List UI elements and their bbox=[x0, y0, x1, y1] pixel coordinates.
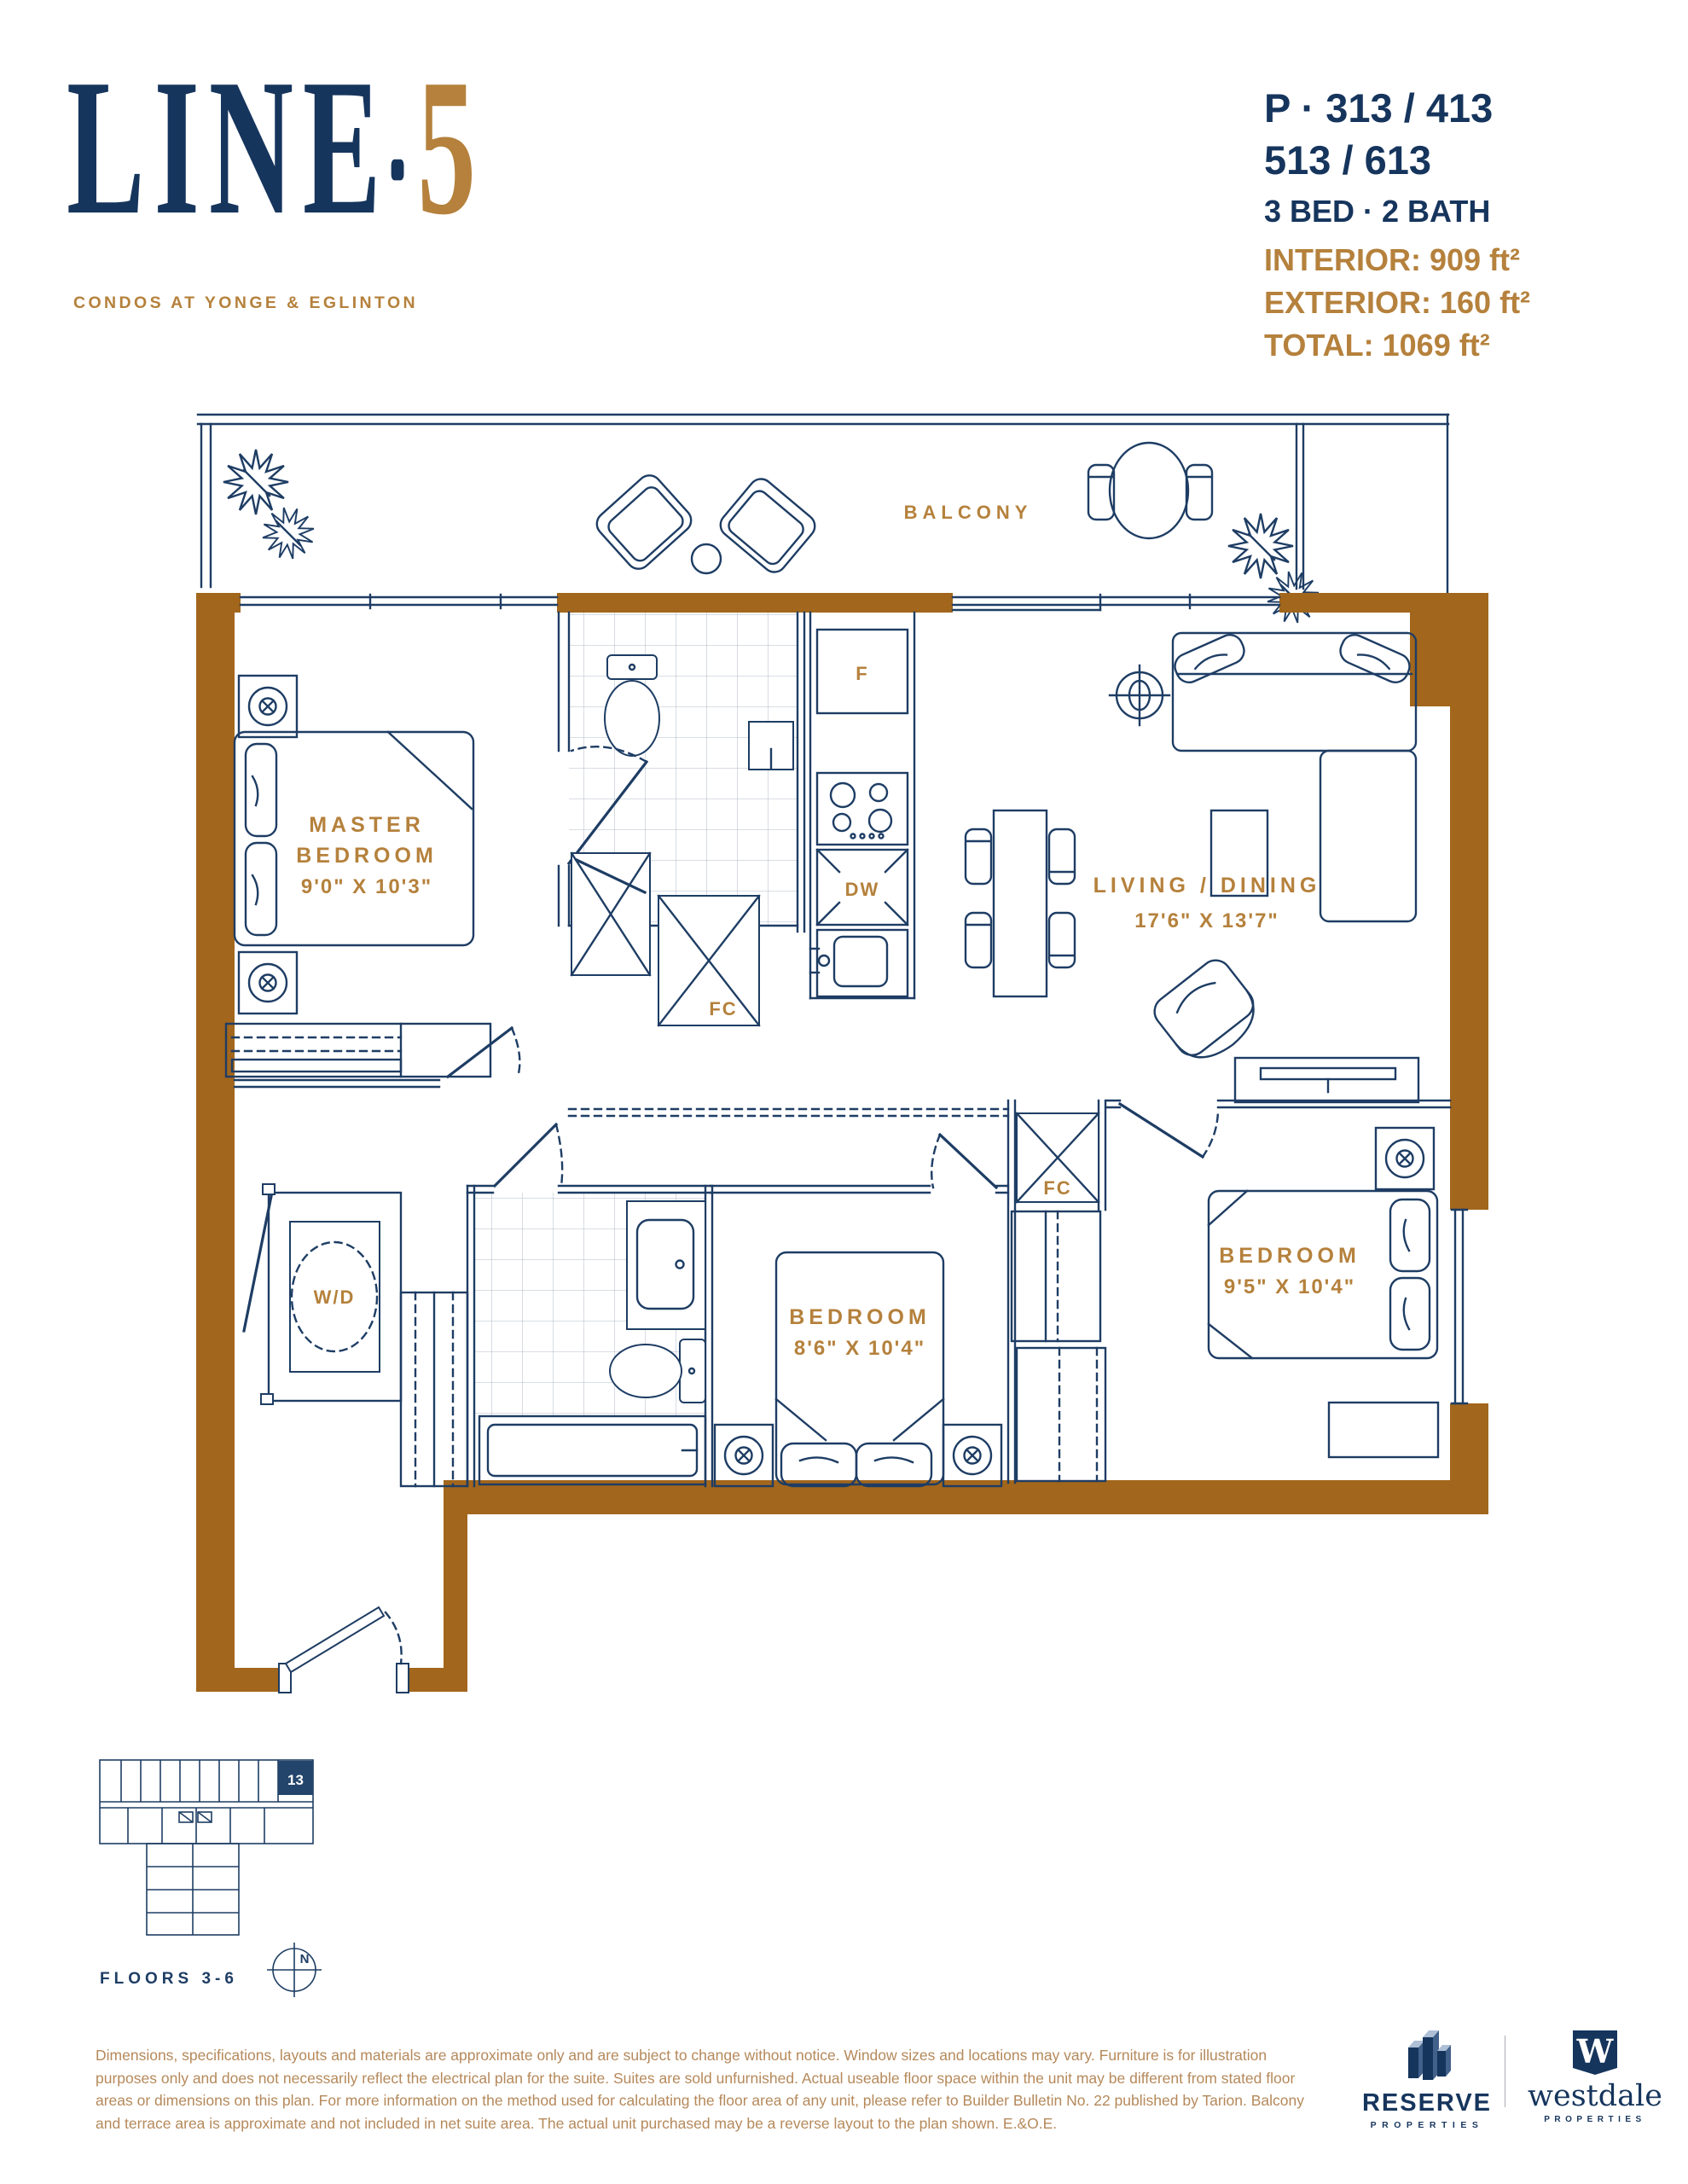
keyplan-floors-label: FLOORS 3-6 bbox=[100, 1970, 238, 1988]
master-bathroom: FC bbox=[559, 613, 804, 1025]
fc-label: FC bbox=[709, 998, 737, 1019]
north-arrow-icon: N bbox=[267, 1943, 322, 1997]
plant-icon bbox=[223, 450, 322, 566]
balcony-chair-icon bbox=[716, 474, 820, 577]
bathroom-sink-icon bbox=[749, 722, 793, 770]
balcony-side-table-icon bbox=[692, 544, 721, 573]
reserve-name: RESERVE bbox=[1354, 2089, 1499, 2117]
dining-chair-icon bbox=[966, 829, 991, 884]
fc-label: FC bbox=[1043, 1177, 1071, 1199]
linen-cabinet-icon bbox=[1012, 1211, 1100, 1341]
bed-icon bbox=[776, 1252, 943, 1484]
balcony-chair-icon bbox=[592, 470, 696, 573]
master-room-dims: 9'0" X 10'3" bbox=[301, 875, 432, 898]
bedroom-3: BEDROOM 9'5" X 10'4" bbox=[1107, 1101, 1450, 1457]
master-bed-icon bbox=[235, 732, 473, 945]
bedroom2-label: BEDROOM bbox=[789, 1305, 931, 1329]
floorplan-page: LINE 5 CONDOS AT YONGE & EGLINTON P · 31… bbox=[0, 0, 1688, 2184]
entry-door-icon bbox=[286, 1607, 384, 1672]
keyplan-unit-number: 13 bbox=[287, 1772, 304, 1788]
bedroom2-dims: 8'6" X 10'4" bbox=[794, 1337, 925, 1360]
westdale-mark-letter: W bbox=[1576, 2032, 1615, 2071]
bathroom-door-icon bbox=[495, 1124, 556, 1186]
keyplan: 13 FLOORS 3-6 N bbox=[68, 1723, 367, 2013]
master-door-icon bbox=[448, 1028, 512, 1077]
toilet-icon bbox=[610, 1339, 705, 1403]
bedroom3-label: BEDROOM bbox=[1219, 1244, 1360, 1268]
line5-logo: LINE 5 bbox=[67, 49, 476, 247]
westdale-name: westdale bbox=[1523, 2079, 1667, 2113]
nightstand-lamp-icon bbox=[715, 1425, 773, 1486]
living-room-dims: 17'6" X 13'7" bbox=[1134, 909, 1279, 932]
living-room-label: LIVING / DINING bbox=[1093, 874, 1321, 897]
armchair-icon bbox=[1148, 954, 1267, 1072]
bedroom-closets: FC bbox=[1008, 1101, 1105, 1483]
tv-console-icon bbox=[1235, 1058, 1418, 1102]
unit-numbers-line1: P · 313 / 413 bbox=[1264, 82, 1530, 134]
kitchen-sink-icon bbox=[810, 930, 908, 996]
dining-chair-icon bbox=[1049, 913, 1075, 967]
disclaimer-text: Dimensions, specifications, layouts and … bbox=[96, 2044, 1325, 2135]
reserve-buildings-icon bbox=[1396, 2027, 1458, 2083]
reserve-logo: RESERVE PROPERTIES bbox=[1354, 2027, 1499, 2130]
laundry-door-icon bbox=[244, 1196, 271, 1331]
foyer-closet-2: FC bbox=[1017, 1113, 1099, 1202]
foyer-closet-1: FC bbox=[658, 896, 759, 1025]
hallway bbox=[569, 1109, 1008, 1116]
balcony-label: BALCONY bbox=[904, 502, 1033, 523]
logo-divider bbox=[1505, 2036, 1505, 2107]
dining-chair-icon bbox=[1049, 829, 1075, 884]
westdale-mark-icon: W bbox=[1571, 2030, 1619, 2075]
wardrobe-icon bbox=[1017, 1348, 1105, 1481]
fridge-label: F bbox=[856, 663, 868, 684]
north-label: N bbox=[300, 1952, 310, 1966]
master-room-label-1: MASTER bbox=[309, 813, 425, 837]
washer-dryer-label: W/D bbox=[314, 1287, 356, 1308]
entry bbox=[279, 1607, 409, 1693]
dining-table-icon bbox=[994, 810, 1047, 996]
laundry: W/D bbox=[244, 1184, 467, 1486]
master-bedroom: MASTER BEDROOM 9'0" X 10'3" bbox=[226, 676, 519, 1087]
balcony-dining-chair-icon bbox=[1186, 465, 1212, 520]
bathroom-sink-icon bbox=[627, 1201, 705, 1329]
unit-numbers-line2: 513 / 613 bbox=[1264, 134, 1530, 186]
floorplan-drawing: BALCONY bbox=[119, 401, 1501, 1715]
bedroom3-dims: 9'5" X 10'4" bbox=[1224, 1275, 1355, 1298]
master-closet-icon bbox=[226, 1024, 490, 1077]
bedroom-2: BEDROOM 8'6" X 10'4" bbox=[711, 1135, 1008, 1486]
ceiling-light-icon bbox=[1110, 665, 1169, 725]
logo-five-text: 5 bbox=[417, 49, 476, 247]
westdale-logo: W westdale PROPERTIES bbox=[1523, 2030, 1667, 2124]
cooktop-icon bbox=[817, 773, 908, 845]
dishwasher-label: DW bbox=[845, 879, 880, 900]
logo-dot-icon bbox=[392, 159, 404, 180]
nightstand-lamp-icon bbox=[239, 952, 297, 1014]
main-bathroom bbox=[467, 1124, 712, 1486]
unit-info: P · 313 / 413 513 / 613 3 BED · 2 BATH I… bbox=[1264, 82, 1530, 367]
reserve-properties-label: PROPERTIES bbox=[1354, 2120, 1499, 2130]
unit-exterior-area: EXTERIOR: 160 ft² bbox=[1264, 282, 1530, 324]
nightstand-lamp-icon bbox=[1376, 1128, 1434, 1189]
shower-icon bbox=[571, 853, 650, 975]
master-room-label-2: BEDROOM bbox=[296, 844, 438, 868]
nightstand-lamp-icon bbox=[943, 1425, 1001, 1486]
kitchen: F DW bbox=[810, 613, 914, 998]
dishwasher-icon: DW bbox=[817, 850, 908, 925]
unit-total-area: TOTAL: 1069 ft² bbox=[1264, 324, 1530, 367]
unit-interior-area: INTERIOR: 909 ft² bbox=[1264, 239, 1530, 282]
living-dining: LIVING / DINING 17'6" X 13'7" bbox=[966, 630, 1418, 1102]
bench-icon bbox=[1329, 1403, 1438, 1457]
bedroom2-door-icon bbox=[940, 1135, 996, 1188]
westdale-properties-label: PROPERTIES bbox=[1523, 2115, 1667, 2124]
balcony-dining-table-icon bbox=[1110, 443, 1188, 538]
nightstand-lamp-icon bbox=[239, 676, 297, 737]
bathtub-icon bbox=[479, 1416, 705, 1484]
bedroom3-door-icon bbox=[1120, 1104, 1203, 1157]
bed-icon bbox=[1209, 1191, 1437, 1358]
walls bbox=[196, 593, 1488, 1692]
logo-line-text: LINE bbox=[67, 49, 390, 247]
unit-config: 3 BED · 2 BATH bbox=[1264, 191, 1530, 232]
toilet-icon bbox=[605, 655, 659, 756]
logo-tagline: CONDOS AT YONGE & EGLINTON bbox=[73, 293, 418, 313]
plant-icon bbox=[1228, 514, 1326, 630]
dining-chair-icon bbox=[966, 913, 991, 967]
